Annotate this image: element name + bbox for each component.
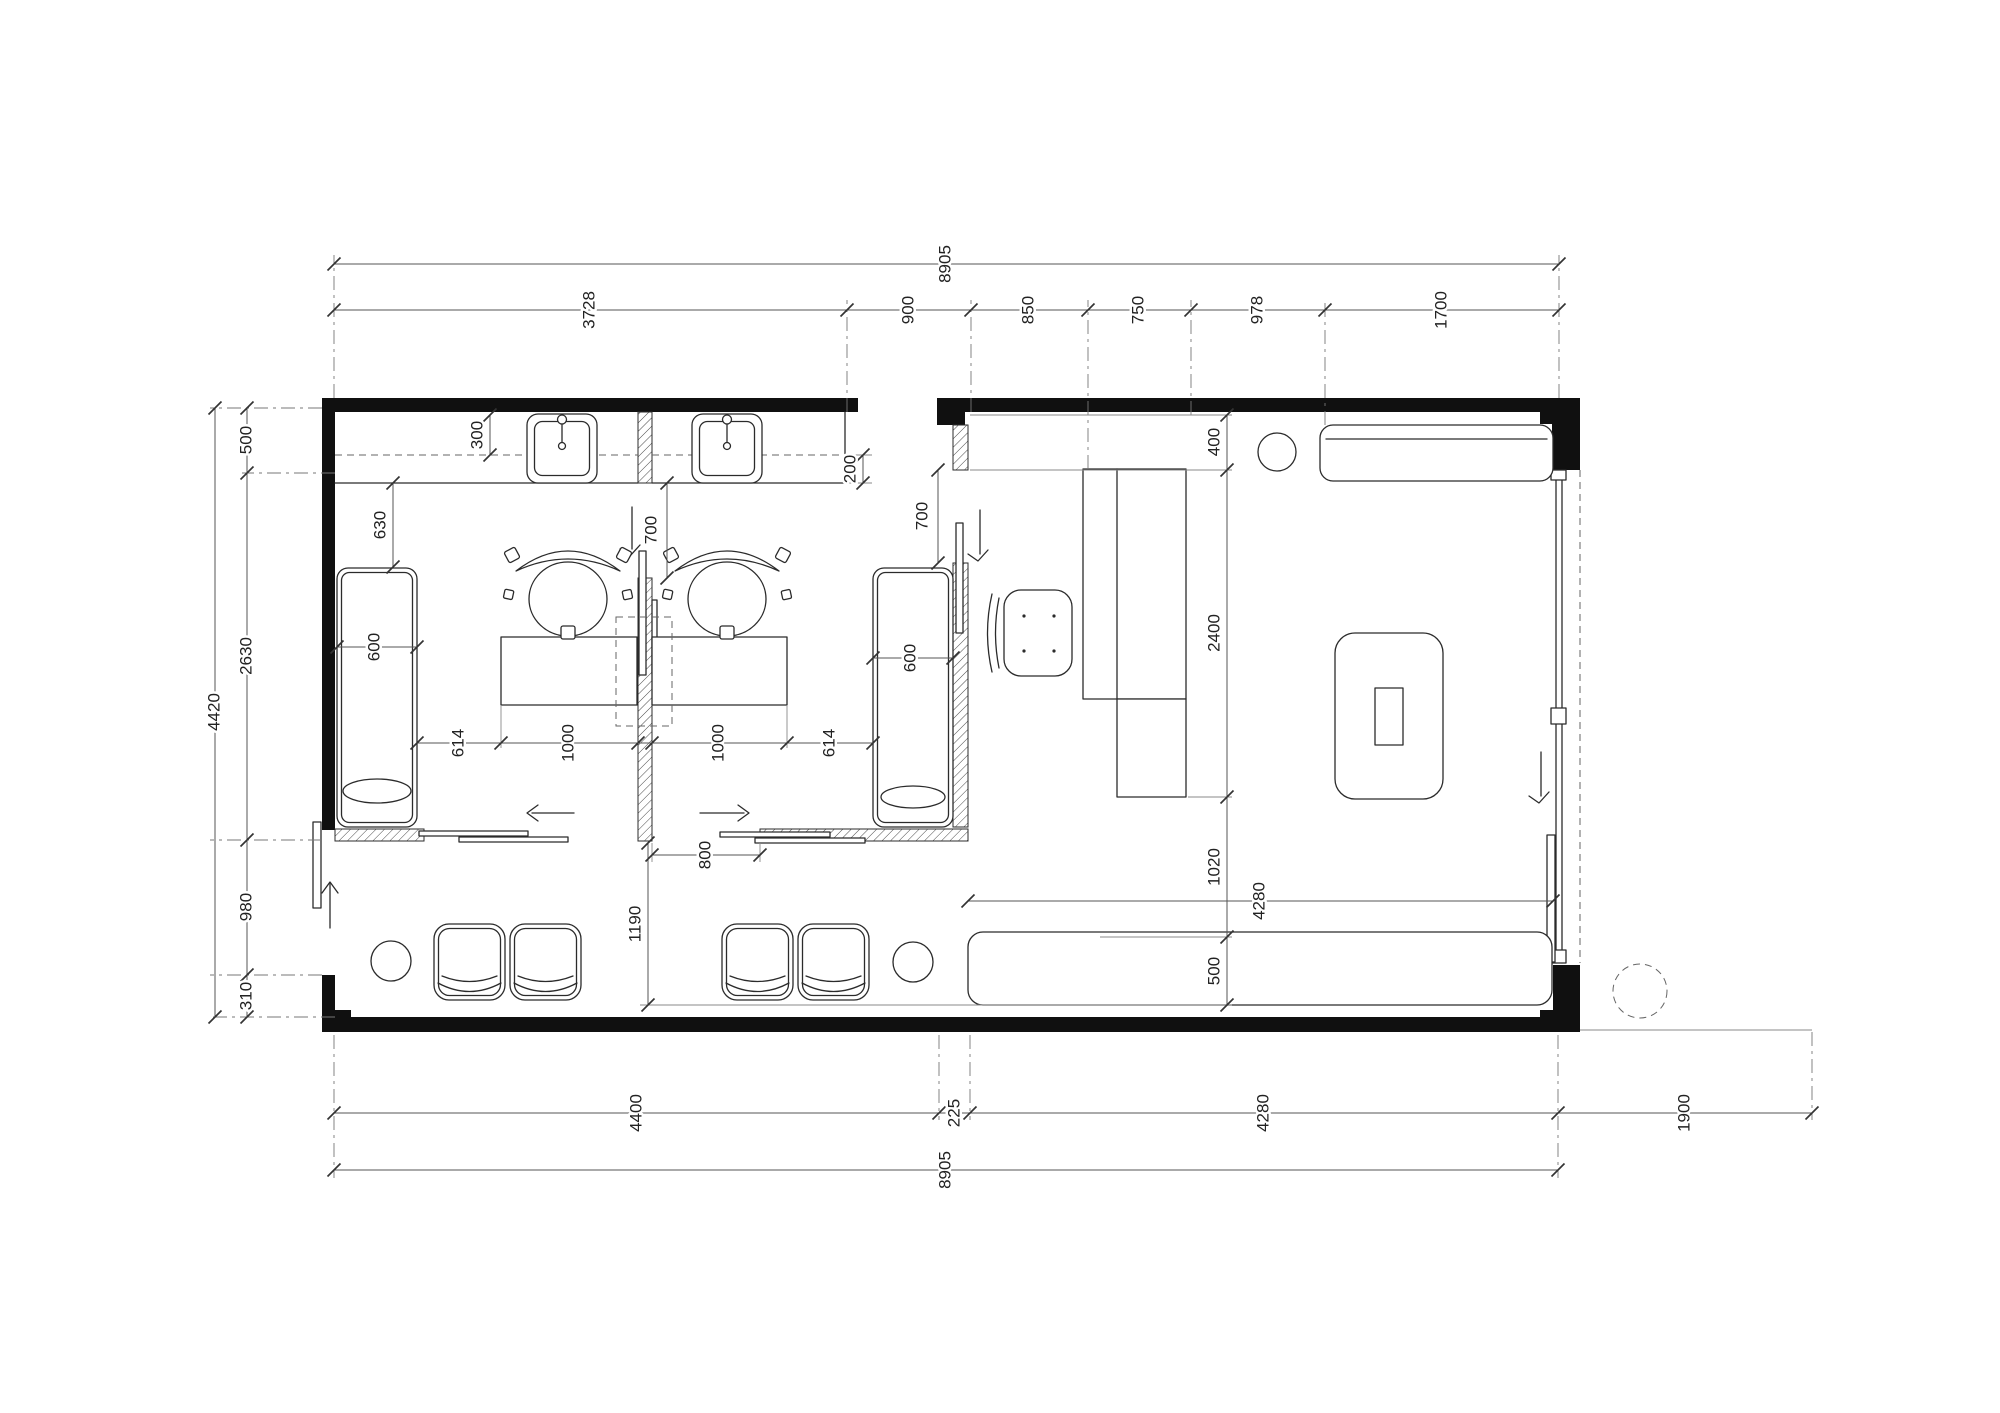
dim-label: 4280 [1249,882,1268,920]
stool-circle [1258,433,1296,471]
dim-label: 4400 [626,1094,645,1132]
styling-chair-icon [503,547,632,639]
sliding-door-right-panel [720,832,830,837]
dim-label: 800 [695,841,714,869]
sliding-door-left-panel [459,837,568,842]
side-table-circle [371,941,411,981]
dim-label: 900 [898,296,917,324]
dim-label: 600 [900,644,919,672]
right-door-leaf [956,523,963,633]
dim-label: 4280 [1253,1094,1272,1132]
extension-lines [210,255,1812,1178]
dim-label: 500 [1204,957,1223,985]
office-chair [988,590,1073,676]
dim-label: 3728 [579,291,598,329]
bench-pillow [881,786,945,808]
wall-cabinet [1320,425,1553,481]
dim-label: 225 [944,1099,963,1127]
sliding-door-left-panel [419,831,528,836]
entrance-door-leaf [313,822,321,908]
dim-label: 4420 [204,693,223,731]
dim-label: 2400 [1204,614,1223,652]
storefront-door-arrow [1529,752,1549,803]
sliding-door-left-arrow [527,805,574,821]
center-door-leaf [639,551,646,675]
sink-icon [527,414,597,483]
dim-label: 400 [1204,428,1223,456]
dim-label: 850 [1018,296,1037,324]
dim-label: 8905 [935,1151,954,1189]
styling-chair-icon [662,547,791,639]
waiting-chair-icon [434,924,505,1000]
dim-label: 1020 [1204,848,1223,886]
bench-left [337,568,417,827]
dim-label: 300 [467,421,486,449]
dim-label: 614 [819,729,838,757]
dim-label: 1900 [1674,1094,1693,1132]
sofa [968,932,1552,1005]
dim-label: 600 [364,633,383,661]
reception-desk [1083,469,1186,797]
floor-plan-sheet: 8905 3728 900 850 750 978 1700 4420 500 … [0,0,2000,1413]
dim-label: 200 [840,455,859,483]
dim-label: 750 [1128,296,1147,324]
dim-label: 1700 [1431,291,1450,329]
dim-label: 630 [370,511,389,539]
dim-label: 700 [641,516,660,544]
styling-desk-left [501,637,637,705]
dim-label: 2630 [236,637,255,675]
sliding-door-right-panel [755,838,865,843]
waiting-chair-icon [722,924,793,1000]
dim-label: 500 [236,426,255,454]
right-door-arrow [968,510,988,561]
dashed-column-circle [1613,964,1667,1018]
coffee-table [1335,633,1443,799]
waiting-area [371,924,933,1000]
dim-label: 8905 [935,245,954,283]
bench-pillow [343,779,411,803]
storefront-glazing [1547,470,1812,1030]
dim-label: 614 [448,729,467,757]
floor-plan-drawing: 8905 3728 900 850 750 978 1700 4420 500 … [0,0,2000,1413]
dim-label: 1000 [558,724,577,762]
dim-label: 700 [912,502,931,530]
backwash-counter [335,412,845,483]
center-partition-upper [638,412,652,483]
dimension-ticks [209,258,1819,1177]
waiting-chair-icon [510,924,581,1000]
sink-icon [692,414,762,483]
right-partition-pier [953,425,968,470]
waiting-chair-icon [798,924,869,1000]
bench-right [873,568,953,827]
side-table-circle [893,942,933,982]
southwest-partition [335,829,424,841]
dim-label: 978 [1247,296,1266,324]
dim-label: 1000 [708,724,727,762]
entrance-swing-arrow [322,882,338,928]
sliding-door-right-arrow [700,805,749,821]
dim-label: 1190 [625,906,644,943]
dim-label: 980 [236,893,255,921]
dim-label: 310 [236,982,255,1010]
